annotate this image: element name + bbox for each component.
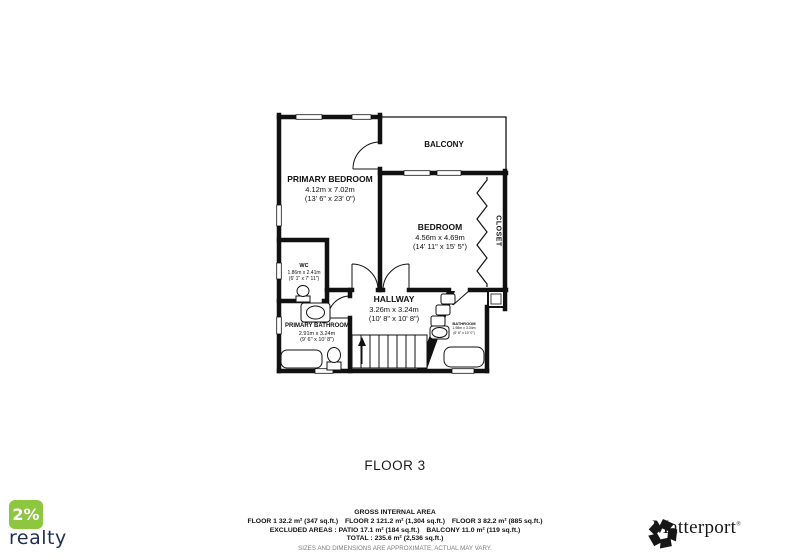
bathtub [281, 350, 322, 368]
closet-doors [477, 177, 487, 287]
area-summary-total: TOTAL : 235.6 m² (2,536 sq.ft.) [248, 535, 543, 544]
staircase [352, 335, 427, 368]
room-name: PRIMARY BEDROOM [287, 174, 372, 185]
room-label-hallway: HALLWAY 3.26m x 3.24m (10' 8" x 10' 8") [369, 294, 419, 323]
cabinet [441, 294, 455, 304]
room-label-closet: CLOSET [493, 215, 502, 246]
room-dim-metric: 4.56m x 4.69m [413, 233, 467, 242]
room-dim-imperial: (14' 11" x 15' 5") [413, 242, 467, 251]
floorplan-graphic [0, 0, 792, 560]
area-summary-title: GROSS INTERNAL AREA [248, 509, 543, 518]
cabinet [431, 316, 445, 326]
floor-title: FLOOR 3 [364, 458, 425, 473]
room-dim-imperial: (13' 6" x 23' 0") [287, 194, 372, 203]
room-dim-imperial: (6' 6" x 10' 0") [452, 331, 475, 336]
room-name: PRIMARY BATHROOM [285, 323, 349, 331]
room-dim-imperial: (9' 6" x 10' 8") [285, 337, 349, 344]
realty-badge-icon: 2% [9, 500, 43, 529]
primary-bathroom-door [328, 296, 350, 318]
room-dim-metric: 4.12m x 7.02m [287, 185, 372, 194]
room-label-primary-bedroom: PRIMARY BEDROOM 4.12m x 7.02m (13' 6" x … [287, 174, 372, 203]
bathroom-sink [432, 328, 447, 338]
toilet-tank [327, 362, 341, 370]
room-dim-imperial: (6' 1" x 7' 11") [287, 276, 320, 282]
sink [307, 306, 325, 319]
primary-bedroom-door [352, 264, 378, 290]
area-summary-floors: FLOOR 1 32.2 m² (347 sq.ft.) FLOOR 2 121… [248, 518, 543, 527]
room-dim-metric: 2.91m x 3.24m [285, 331, 349, 338]
bedroom-door [383, 264, 409, 290]
matterport-pinwheel-icon [646, 517, 680, 551]
area-summary-excluded: EXCLUDED AREAS : PATIO 17.1 m² (184 sq.f… [248, 527, 543, 536]
room-label-primary-bathroom: PRIMARY BATHROOM 2.91m x 3.24m (9' 6" x … [285, 323, 349, 344]
cabinet [436, 305, 450, 315]
room-label-bathroom: BATHROOM 1.98m x 3.04m (6' 6" x 10' 0") [452, 321, 475, 335]
wc-toilet [297, 286, 309, 297]
area-summary: GROSS INTERNAL AREA FLOOR 1 32.2 m² (347… [248, 509, 543, 553]
room-label-wc: WC 1.86m x 2.41m (6' 1" x 7' 11") [287, 263, 320, 282]
room-name: WC [287, 263, 320, 270]
realty-logo: 2% realty [9, 500, 99, 549]
bathroom-tub [444, 347, 484, 367]
room-label-bedroom: BEDROOM 4.56m x 4.69m (14' 11" x 15' 5") [413, 222, 467, 251]
toilet [328, 348, 341, 363]
matterport-logo: Matterport® [646, 517, 741, 539]
room-name: HALLWAY [369, 294, 419, 305]
floorplan-page: PRIMARY BEDROOM 4.12m x 7.02m (13' 6" x … [0, 0, 792, 560]
room-dim-metric: 3.26m x 3.24m [369, 305, 419, 314]
area-summary-disclaimer: SIZES AND DIMENSIONS ARE APPROXIMATE, AC… [248, 545, 543, 553]
shower-drain [491, 294, 501, 304]
room-name: BEDROOM [413, 222, 467, 233]
room-dim-imperial: (10' 8" x 10' 8") [369, 314, 419, 323]
registered-mark: ® [736, 522, 741, 528]
room-label-balcony: BALCONY [424, 140, 464, 150]
room-name: BALCONY [424, 140, 464, 150]
realty-logo-text: realty [9, 527, 99, 549]
balcony-door [353, 142, 380, 169]
